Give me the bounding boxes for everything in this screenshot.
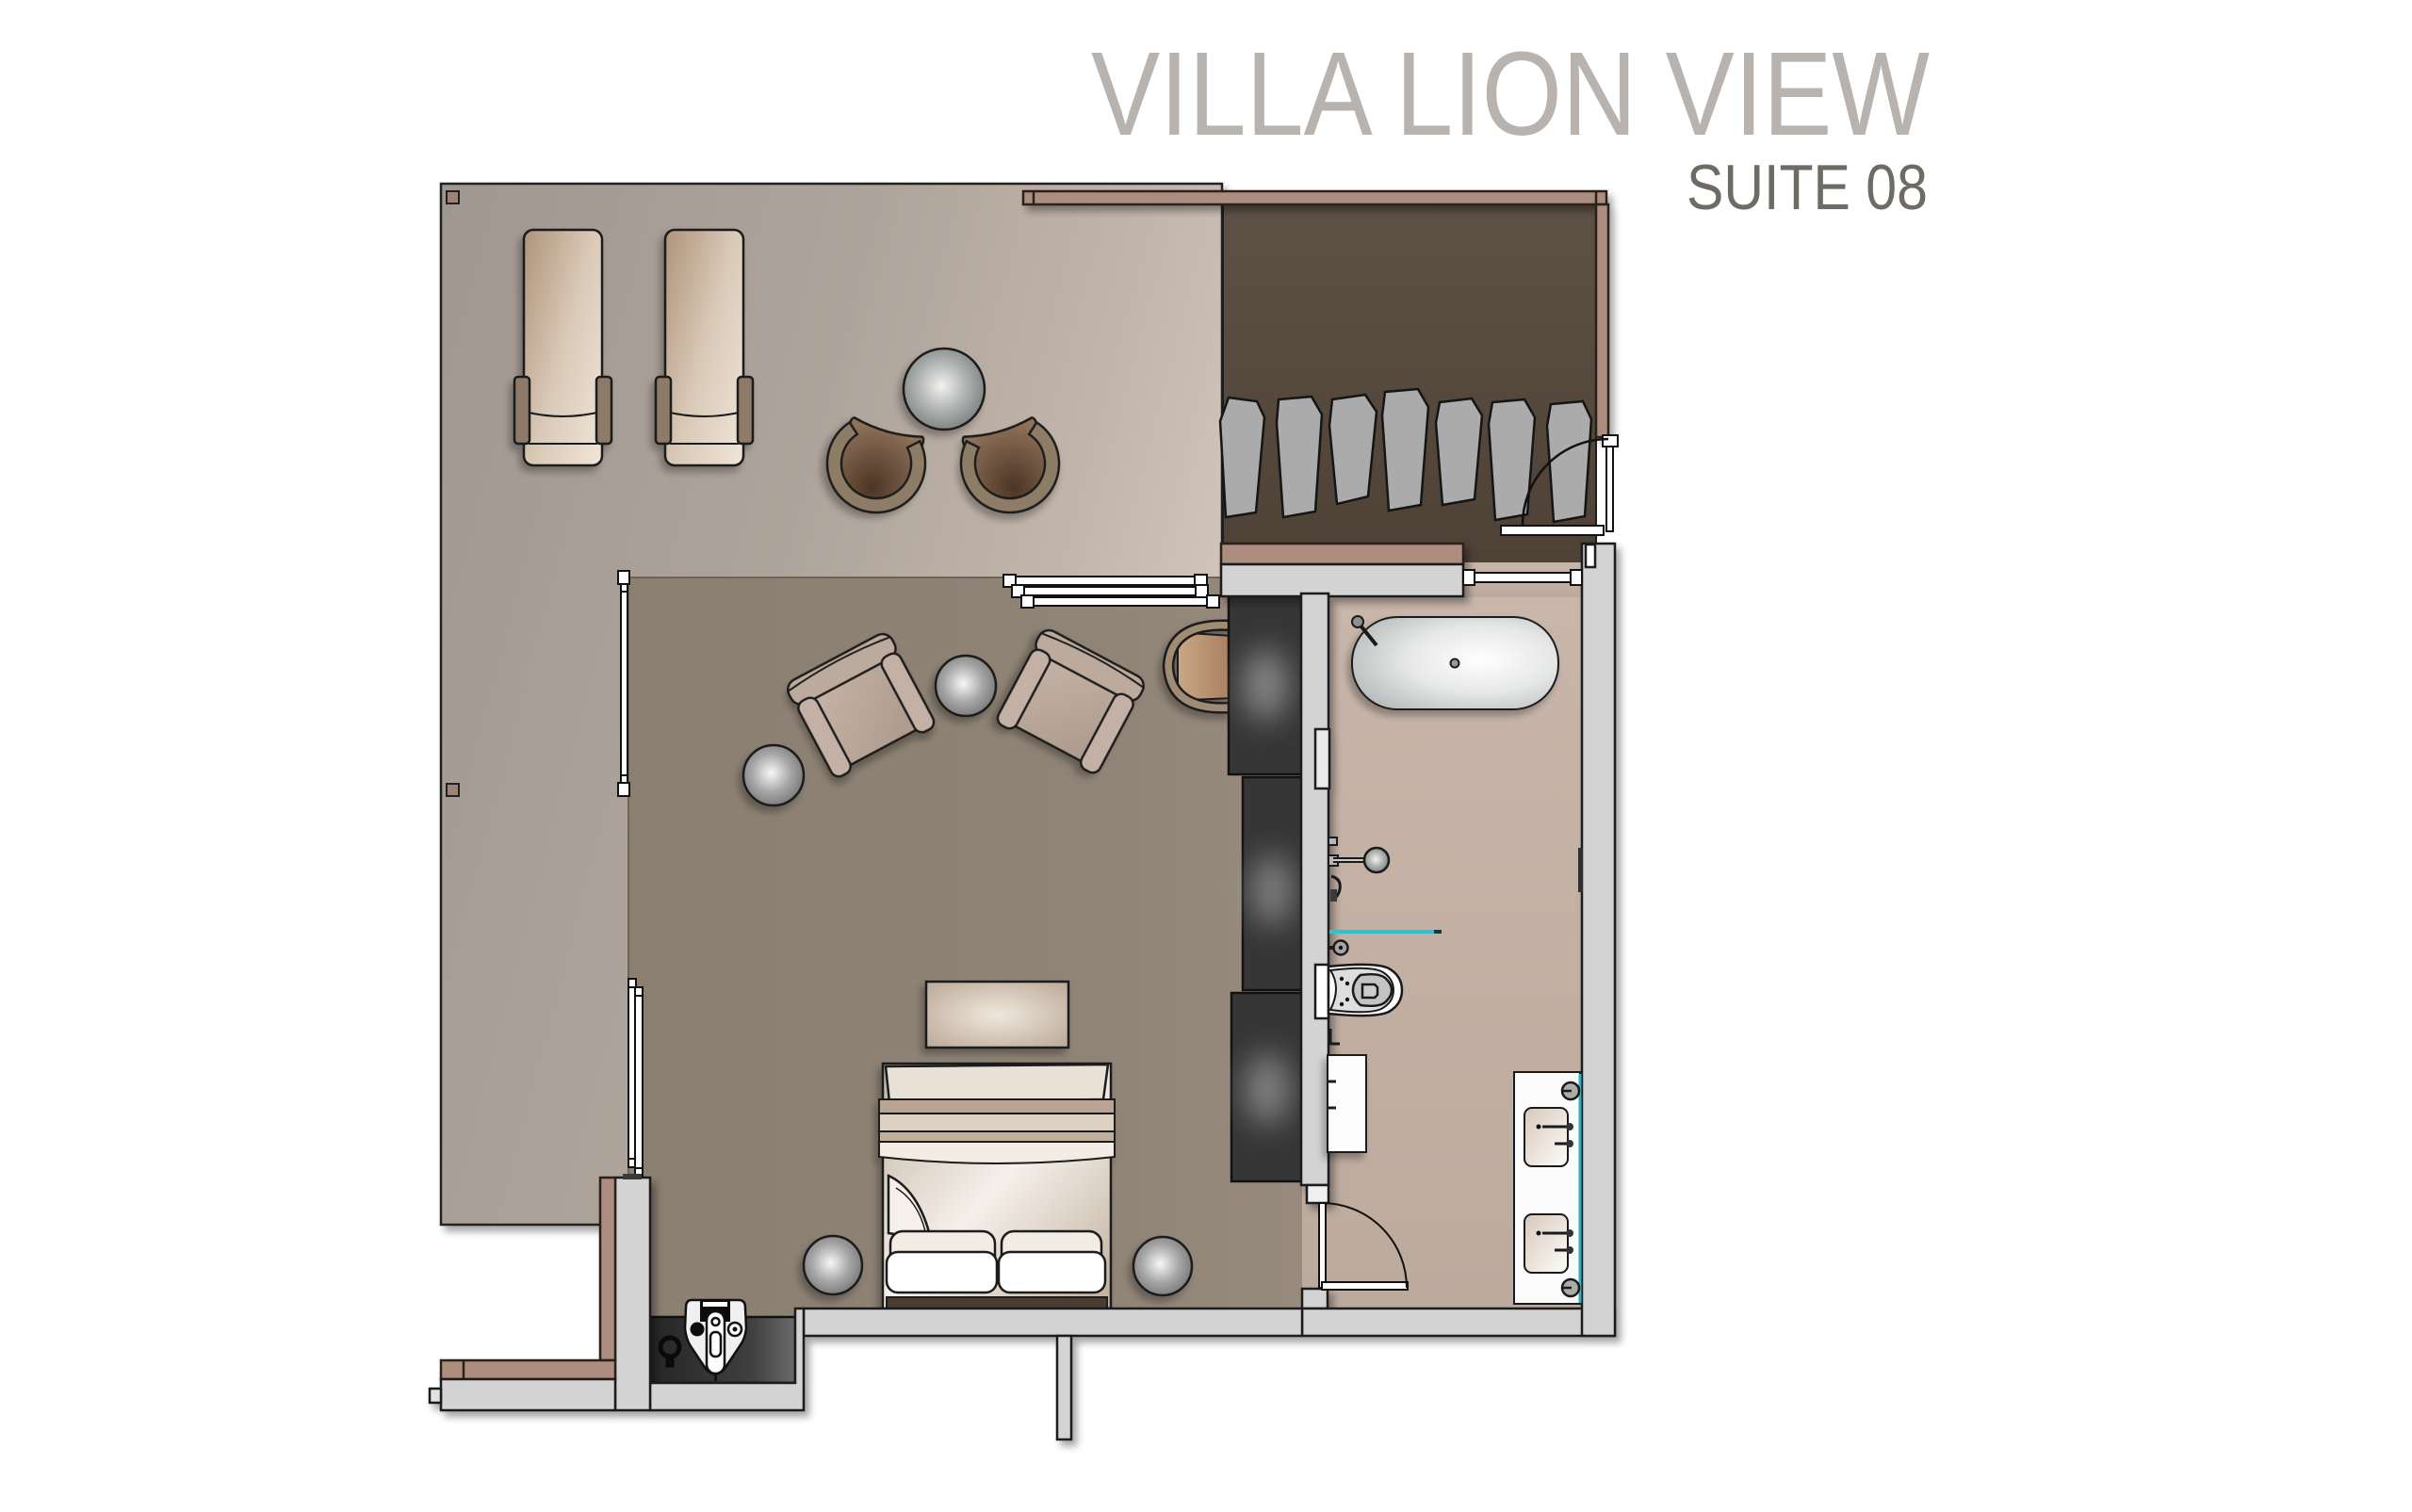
svg-text:SUITE 08: SUITE 08	[1687, 152, 1928, 223]
svg-text:VILLA LION VIEW: VILLA LION VIEW	[1091, 27, 1930, 160]
